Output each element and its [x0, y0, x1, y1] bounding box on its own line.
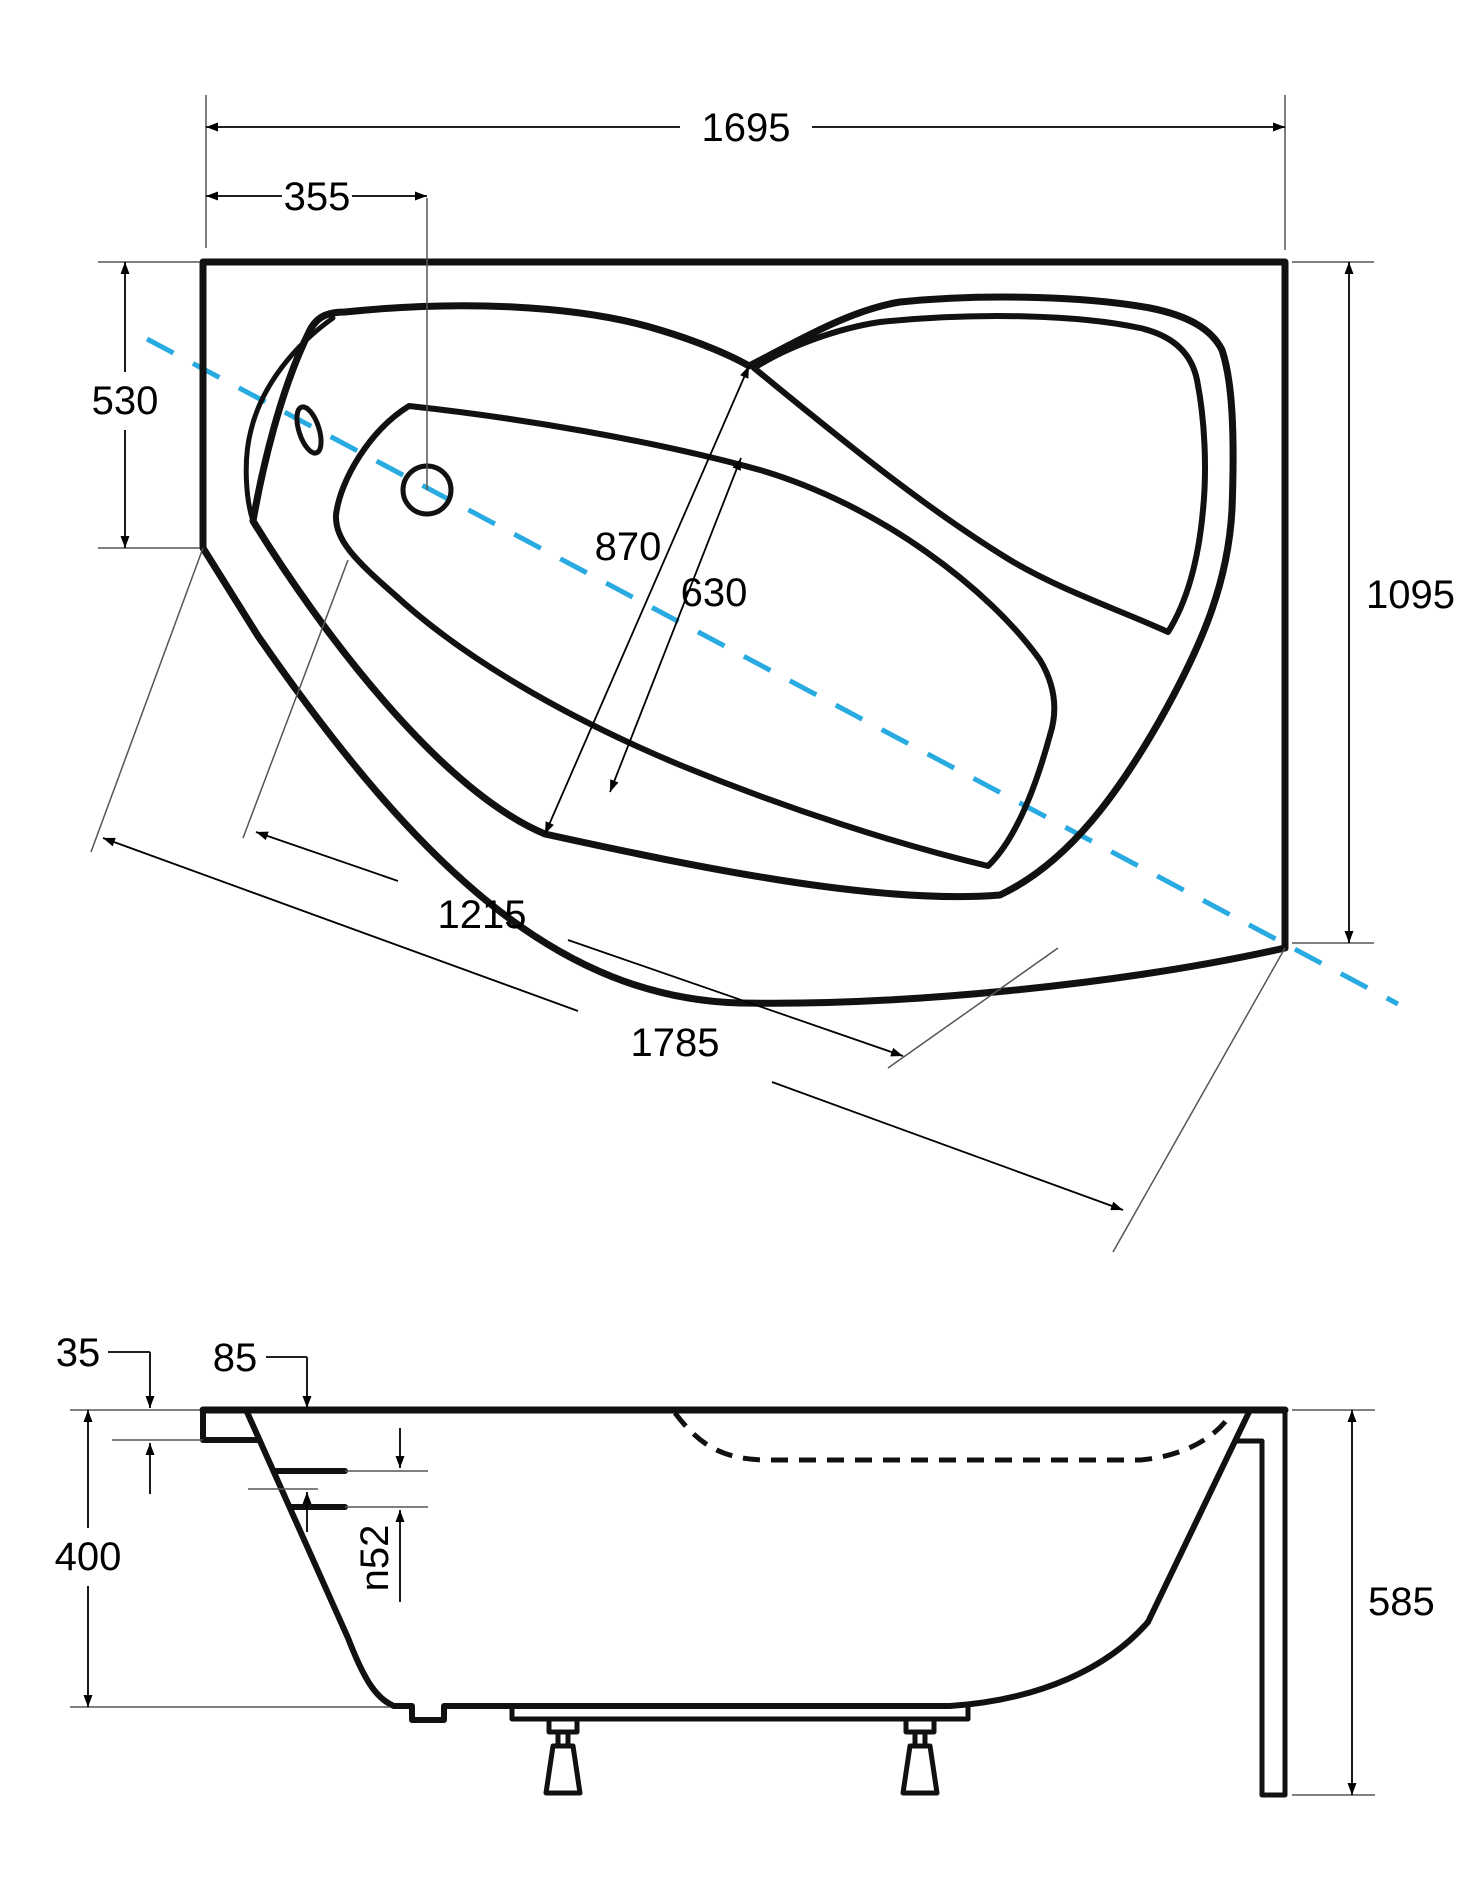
- dim-rim-lip-height: 35: [56, 1331, 203, 1494]
- dim-basin-width: 630: [610, 458, 747, 792]
- dim-hole-offset: 355: [206, 175, 427, 219]
- dim-overall-height-label: 585: [1368, 1580, 1435, 1624]
- dim-hole-diameter: n52: [353, 1428, 400, 1602]
- adjustable-foot-right: [903, 1719, 937, 1793]
- overflow-hole: [292, 404, 326, 456]
- adjustable-foot-left: [546, 1719, 580, 1793]
- side-view: 35 85 400 n52 585: [55, 1331, 1435, 1795]
- bathtub-technical-drawing: 1695 355 530 1095 870: [0, 0, 1474, 1898]
- dim-left-side-depth-label: 530: [92, 379, 159, 423]
- dim-right-side-depth-label: 1095: [1366, 573, 1455, 617]
- dim-opening-width-label: 870: [595, 525, 662, 569]
- dim-overall-height: 585: [1292, 1410, 1435, 1795]
- rear-panel-outline: [1235, 1412, 1285, 1795]
- dim-basin-width-label: 630: [681, 571, 748, 615]
- dim-rim-lip-height-label: 35: [56, 1331, 101, 1375]
- dim-overall-width-label: 1695: [702, 106, 791, 150]
- dim-hole-diameter-label: n52: [353, 1525, 397, 1592]
- dim-inner-diagonal-label: 1215: [438, 893, 527, 937]
- tub-outer-outline: [203, 262, 1285, 1003]
- floor-line: [394, 1622, 1148, 1720]
- seat-hidden-contour: [675, 1413, 1232, 1460]
- dim-tub-depth: 400: [55, 1410, 390, 1707]
- dim-overall-width: 1695: [206, 95, 1285, 250]
- center-axis-line: [147, 339, 1398, 1004]
- dim-left-side-depth: 530: [92, 262, 200, 548]
- dim-hole-offset-label: 355: [284, 175, 351, 219]
- dim-right-side-depth: 1095: [1292, 262, 1455, 943]
- headrest-panel-outline: [754, 316, 1205, 632]
- dim-hole-center-offset-label: 85: [213, 1336, 258, 1380]
- top-view: 1695 355 530 1095 870: [91, 95, 1455, 1252]
- dim-tub-depth-label: 400: [55, 1535, 122, 1579]
- dim-outer-diagonal-label: 1785: [631, 1021, 720, 1065]
